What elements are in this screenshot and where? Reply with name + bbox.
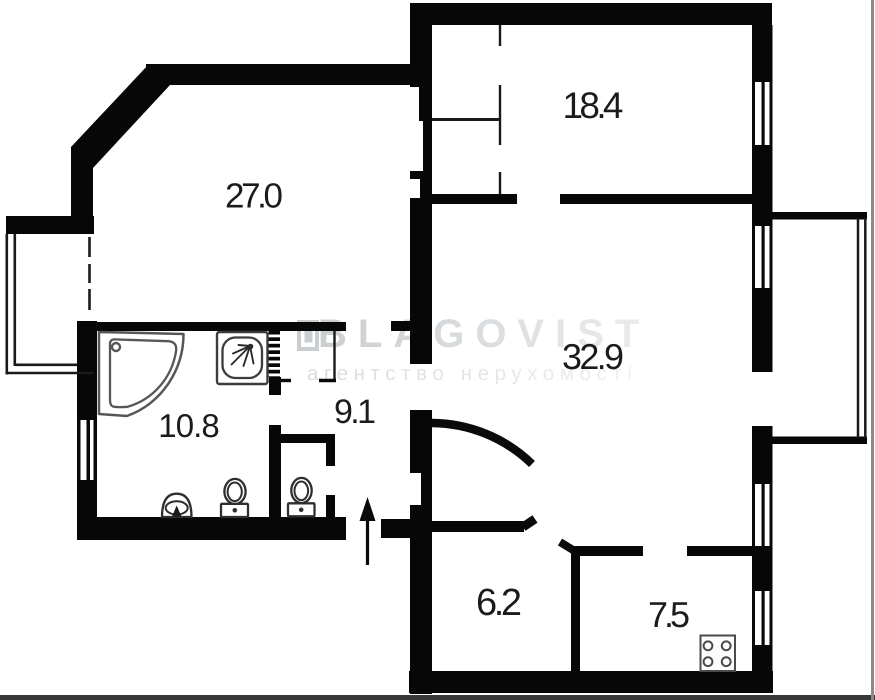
svg-text:6.2: 6.2 bbox=[476, 582, 522, 624]
svg-text:7.5: 7.5 bbox=[648, 594, 690, 635]
svg-text:10.8: 10.8 bbox=[158, 407, 220, 444]
svg-text:18.4: 18.4 bbox=[563, 85, 624, 126]
svg-text:32.9: 32.9 bbox=[562, 336, 624, 377]
svg-text:27.0: 27.0 bbox=[225, 177, 283, 216]
svg-text:9.1: 9.1 bbox=[334, 393, 376, 431]
